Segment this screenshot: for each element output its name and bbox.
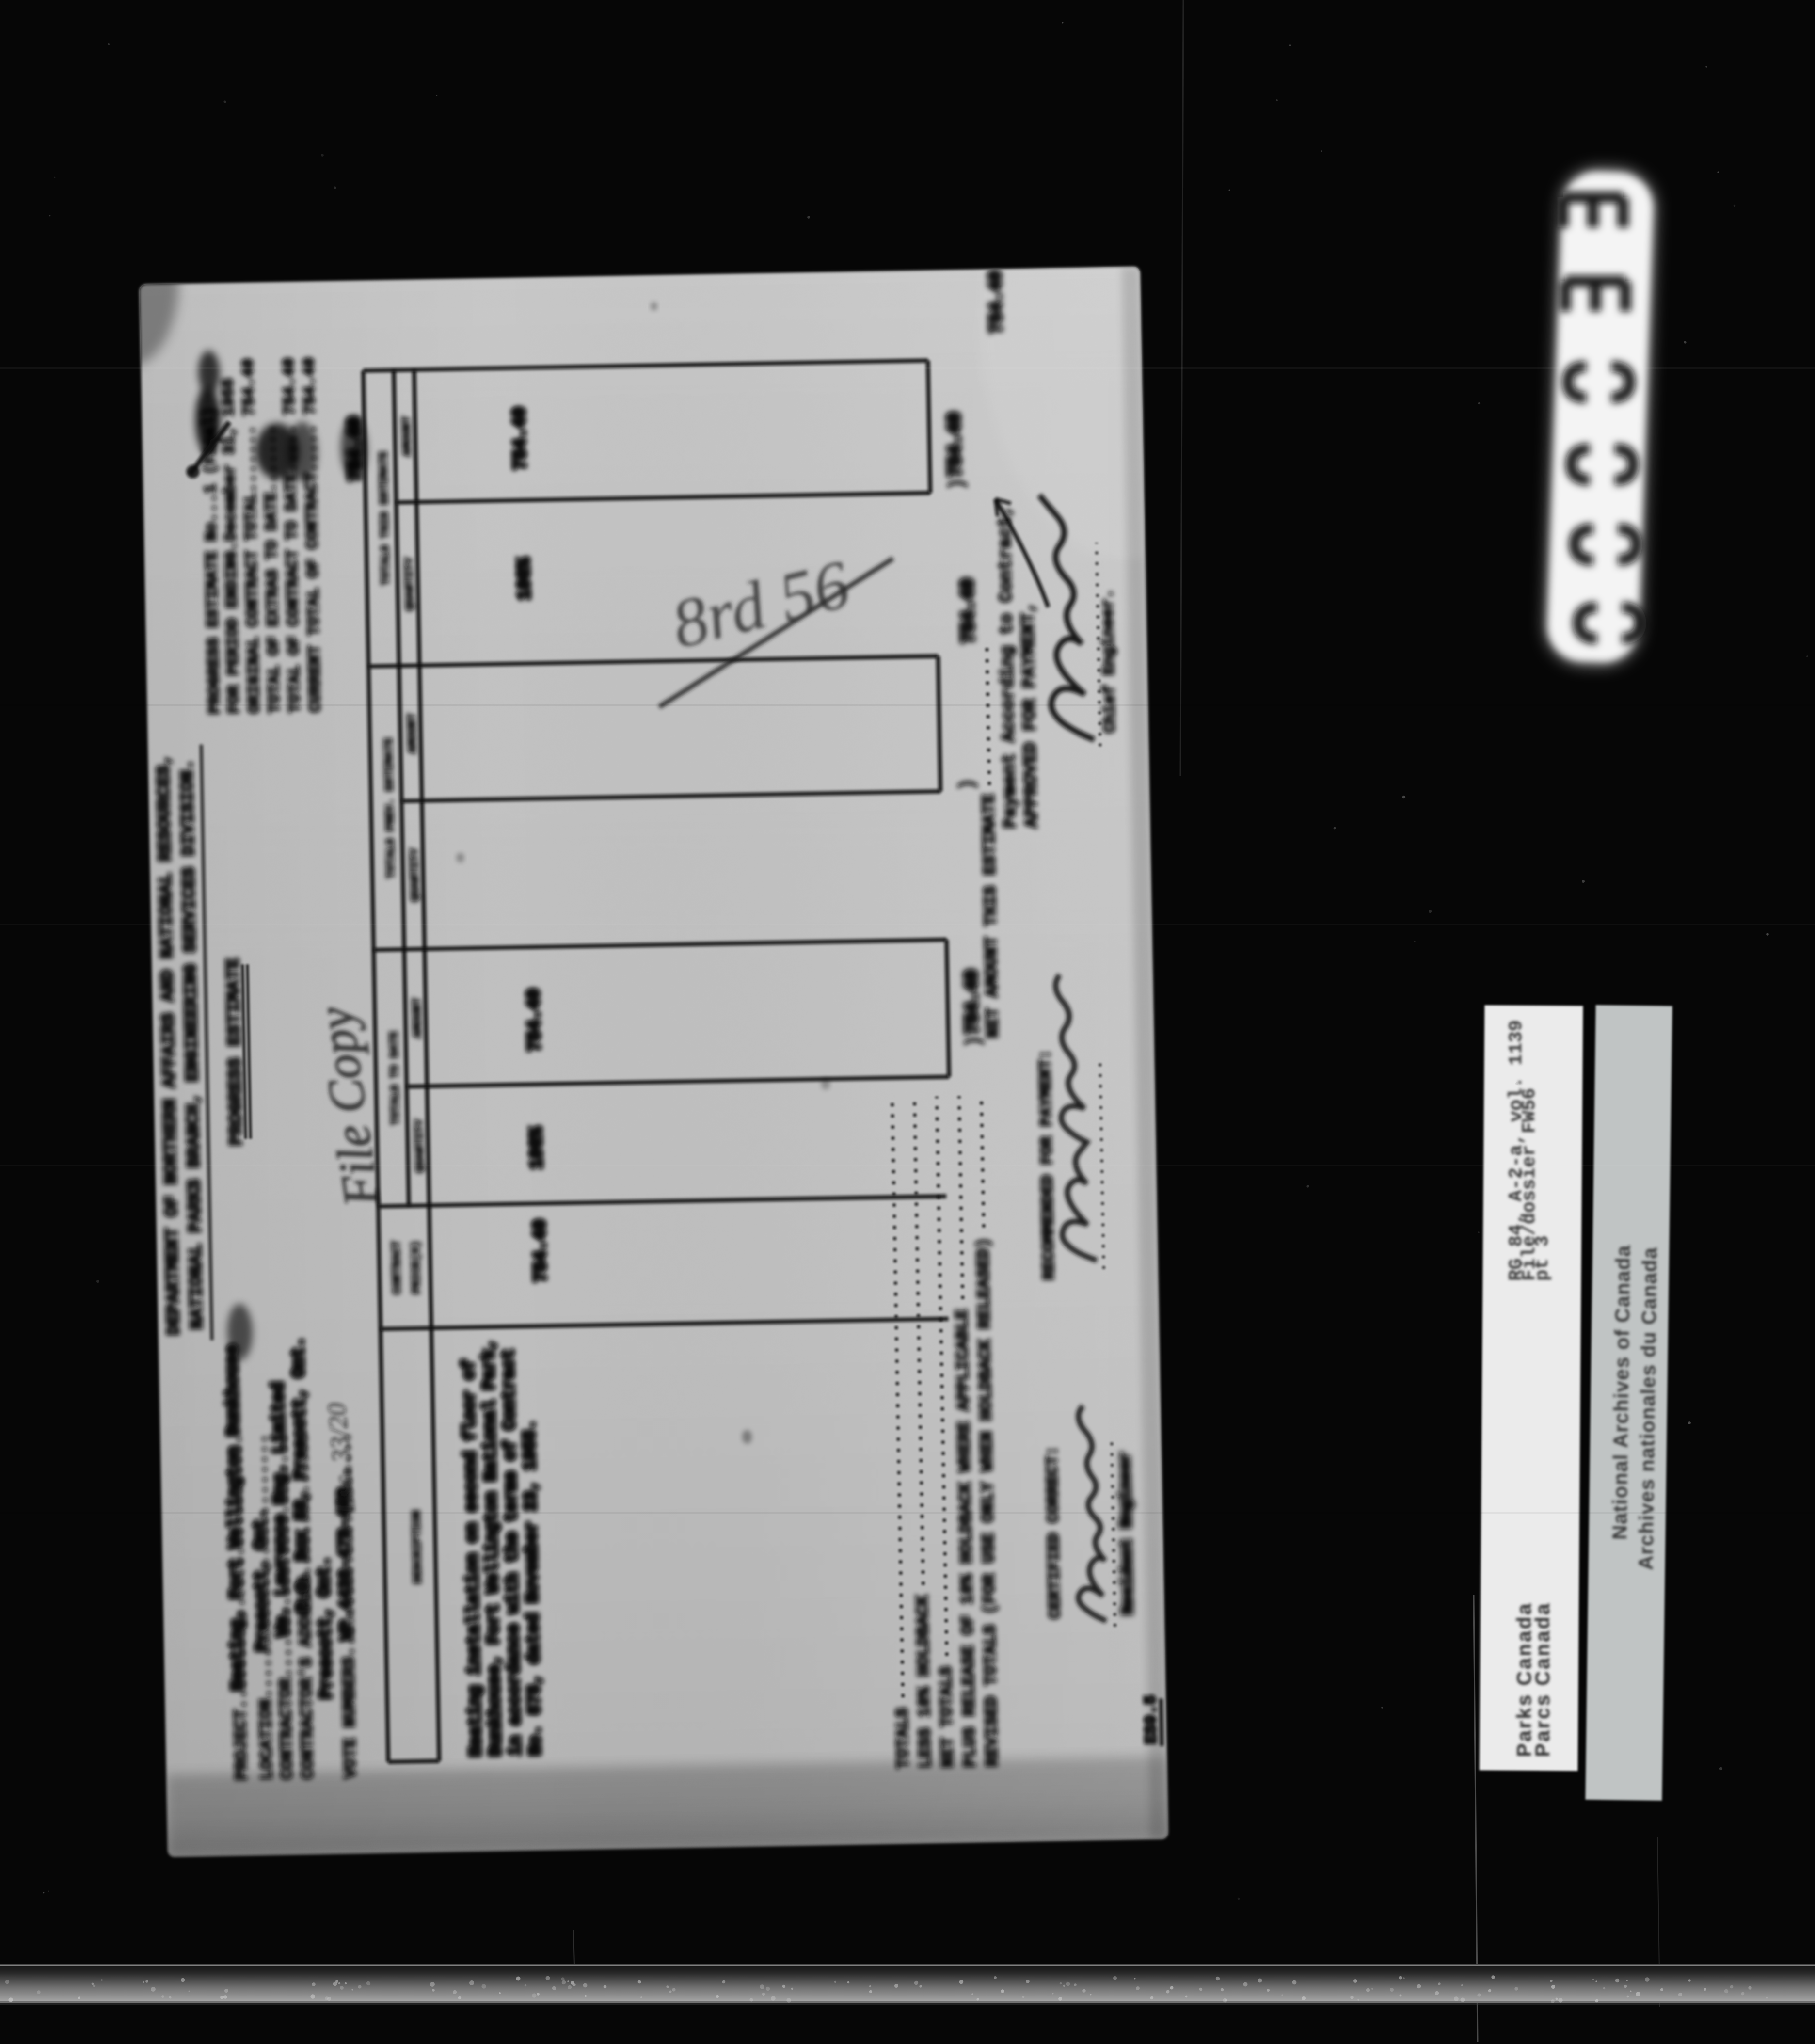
svg-text:TOTALS: TOTALS — [893, 1708, 913, 1769]
svg-text:): ) — [962, 1035, 986, 1047]
svg-text:754.40: 754.40 — [531, 1218, 552, 1281]
svg-text:APPROVED FOR PAYMENT,: APPROVED FOR PAYMENT, — [1018, 602, 1042, 828]
svg-text:): ) — [956, 778, 979, 791]
svg-text:TOTALS PREV. ESTIMATE: TOTALS PREV. ESTIMATE — [382, 738, 398, 878]
svg-text:ES9.5: ES9.5 — [1142, 1694, 1162, 1744]
svg-text:): ) — [945, 478, 969, 490]
svg-text:QUANTITY: QUANTITY — [403, 557, 416, 611]
svg-text:Prescott, Ont.: Prescott, Ont. — [315, 1555, 337, 1698]
svg-text:LESS 10% HOLDBACK: LESS 10% HOLDBACK — [913, 1595, 936, 1769]
svg-text:QUANTITY: QUANTITY — [408, 848, 422, 902]
svg-text:CERTIFIED CORRECT:: CERTIFIED CORRECT: — [1043, 1446, 1064, 1619]
svg-text:754.40: 754.40 — [987, 270, 1007, 333]
svg-text:AMOUNT: AMOUNT — [400, 416, 414, 456]
svg-text:pt 3: pt 3 — [1532, 1235, 1553, 1281]
svg-text:754.40: 754.40 — [945, 412, 967, 477]
svg-text:AMOUNT: AMOUNT — [406, 713, 419, 753]
svg-text:754.40: 754.40 — [963, 969, 984, 1034]
svg-text:AMOUNT: AMOUNT — [411, 998, 424, 1038]
svg-text:PRICE(S): PRICE(S) — [410, 1240, 423, 1294]
svg-text:DESCRIPTION: DESCRIPTION — [411, 1510, 425, 1584]
svg-text:Resident Engineer: Resident Engineer — [1116, 1452, 1137, 1615]
svg-text:754.40: 754.40 — [958, 577, 980, 642]
svg-text:Parcs Canada: Parcs Canada — [1531, 1602, 1554, 1757]
svg-text:Archives nationales du Canada: Archives nationales du Canada — [1634, 1247, 1661, 1570]
svg-text:National Archives of Canada: National Archives of Canada — [1608, 1245, 1634, 1540]
svg-text:Chief Engineer.: Chief Engineer. — [1099, 589, 1119, 734]
svg-text:100%: 100% — [527, 1126, 548, 1168]
svg-text:754.40: 754.40 — [510, 406, 531, 469]
svg-text:Prescott, Ont.: Prescott, Ont. — [251, 1508, 273, 1651]
svg-text:TOTALS THIS ESTIMATE: TOTALS THIS ESTIMATE — [377, 451, 392, 585]
svg-text:100%: 100% — [515, 557, 536, 600]
svg-text:754.40: 754.40 — [525, 988, 545, 1051]
svg-text:TOTALS TO DATE: TOTALS TO DATE — [388, 1031, 402, 1125]
svg-text:NET TOTALS: NET TOTALS — [937, 1666, 958, 1768]
svg-text:CONTRACT: CONTRACT — [390, 1241, 404, 1294]
